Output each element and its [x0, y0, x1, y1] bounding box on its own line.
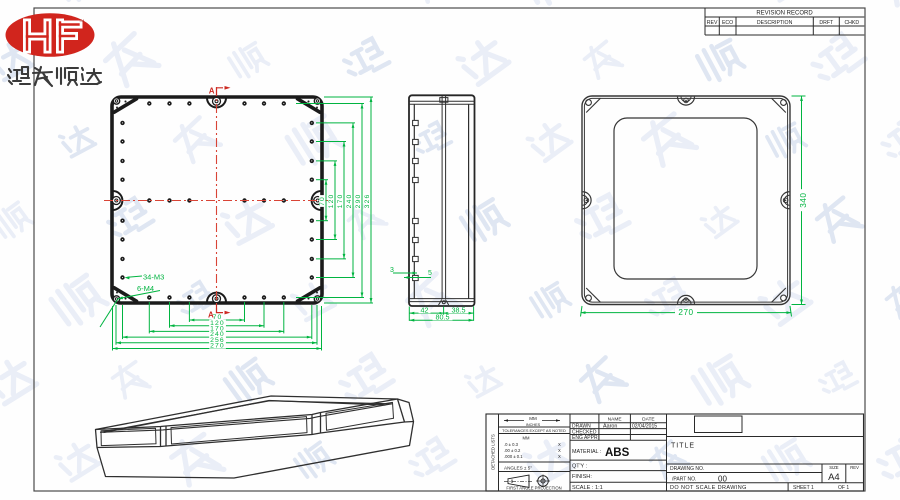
svg-text:DATE: DATE	[642, 417, 654, 423]
svg-text:270: 270	[678, 308, 693, 317]
svg-text:NAME: NAME	[608, 417, 622, 423]
svg-text:DESCRIPTION: DESCRIPTION	[757, 20, 793, 26]
svg-text:DO NOT SCALE DRAWING: DO NOT SCALE DRAWING	[670, 485, 747, 491]
svg-text:X: X	[558, 442, 561, 447]
svg-text:3: 3	[390, 267, 394, 274]
svg-text:MM: MM	[529, 416, 537, 421]
svg-text:OF 1: OF 1	[838, 485, 849, 491]
svg-text:00: 00	[718, 474, 727, 483]
svg-text:QT'Y :: QT'Y :	[572, 463, 587, 469]
svg-text:TOLERANCES EXCEPT AS NOTED: TOLERANCES EXCEPT AS NOTED	[502, 428, 566, 433]
svg-text:70: 70	[319, 196, 326, 206]
svg-text:DRFT: DRFT	[819, 20, 834, 26]
svg-text:240: 240	[346, 194, 353, 209]
svg-text:80.5: 80.5	[436, 312, 450, 321]
svg-text:SCALE : 1:1: SCALE : 1:1	[572, 485, 603, 491]
svg-text:DRAWING NO.: DRAWING NO.	[670, 466, 704, 472]
svg-text:REV: REV	[707, 20, 718, 26]
svg-text:REVISION RECORD: REVISION RECORD	[756, 11, 813, 17]
svg-text:ABS: ABS	[605, 447, 630, 459]
svg-text:INCHES: INCHES	[526, 423, 541, 427]
svg-text:42: 42	[421, 305, 429, 314]
svg-text:6-M4: 6-M4	[137, 284, 154, 293]
svg-text:MM: MM	[523, 436, 530, 441]
svg-text:.0 ± 0.3: .0 ± 0.3	[504, 442, 519, 447]
svg-text:ANGLES ± 5°: ANGLES ± 5°	[504, 466, 532, 471]
svg-text:02/04/2015: 02/04/2015	[632, 424, 657, 430]
svg-text:TM: TM	[79, 19, 84, 23]
svg-text:290: 290	[355, 194, 362, 209]
svg-text:FIRST ANGLE PROJECTION: FIRST ANGLE PROJECTION	[506, 486, 561, 491]
svg-text:.000 ± 0.1: .000 ± 0.1	[504, 454, 523, 459]
svg-text:Aaron: Aaron	[603, 424, 617, 430]
svg-text:170: 170	[337, 194, 344, 209]
svg-text:ECO: ECO	[722, 20, 733, 26]
svg-text:MATERIAL :: MATERIAL :	[572, 449, 601, 455]
svg-text:A4: A4	[828, 472, 840, 483]
svg-text:X: X	[558, 448, 561, 453]
svg-text:CHKD: CHKD	[844, 20, 859, 26]
svg-text:ENG APPR: ENG APPR	[572, 435, 598, 441]
svg-text:A: A	[209, 87, 215, 96]
svg-text:DETACHED LISTS: DETACHED LISTS	[491, 434, 496, 470]
svg-text:A: A	[208, 310, 214, 319]
svg-text:38.5: 38.5	[452, 305, 466, 314]
svg-text:.00 ± 0.2: .00 ± 0.2	[504, 448, 521, 453]
svg-text:FINISH:: FINISH:	[572, 474, 592, 480]
svg-text:340: 340	[799, 193, 808, 208]
svg-text:270: 270	[210, 343, 225, 350]
svg-text:TITLE: TITLE	[671, 443, 695, 450]
svg-text:34-M3: 34-M3	[143, 272, 164, 281]
svg-text:SIZE: SIZE	[829, 465, 839, 470]
svg-text:5: 5	[428, 270, 432, 277]
svg-text:X: X	[558, 454, 561, 459]
svg-text:120: 120	[328, 194, 335, 209]
svg-text:326: 326	[364, 194, 371, 209]
svg-text:/PART NO.: /PART NO.	[672, 477, 696, 483]
svg-text:REV: REV	[850, 465, 859, 470]
svg-text:SHEET 1: SHEET 1	[793, 485, 814, 491]
